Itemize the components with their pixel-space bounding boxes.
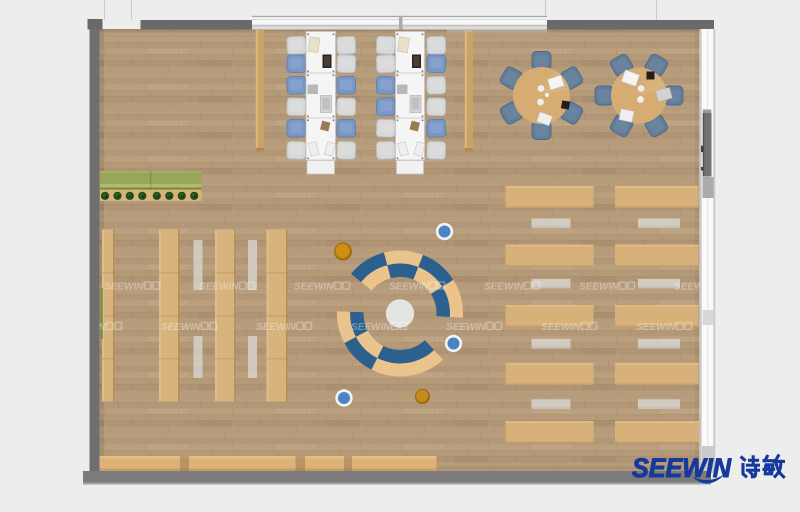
svg-text:SEEWIN: SEEWIN [579,282,619,293]
svg-text:SEEWIN: SEEWIN [351,322,391,333]
svg-text:SEEWIN: SEEWIN [161,322,201,333]
svg-text:SEEWIN: SEEWIN [484,282,524,293]
svg-text:SEEWIN: SEEWIN [199,282,239,293]
svg-text:SEEWIN: SEEWIN [389,282,429,293]
svg-text:SEEWIN: SEEWIN [256,322,296,333]
svg-text:SEEWIN: SEEWIN [541,322,581,333]
svg-text:SEEWIN: SEEWIN [636,322,676,333]
svg-text:SEEWIN: SEEWIN [294,282,334,293]
svg-text:SEEWIN: SEEWIN [104,282,144,293]
svg-text:SEEWIN: SEEWIN [446,322,486,333]
